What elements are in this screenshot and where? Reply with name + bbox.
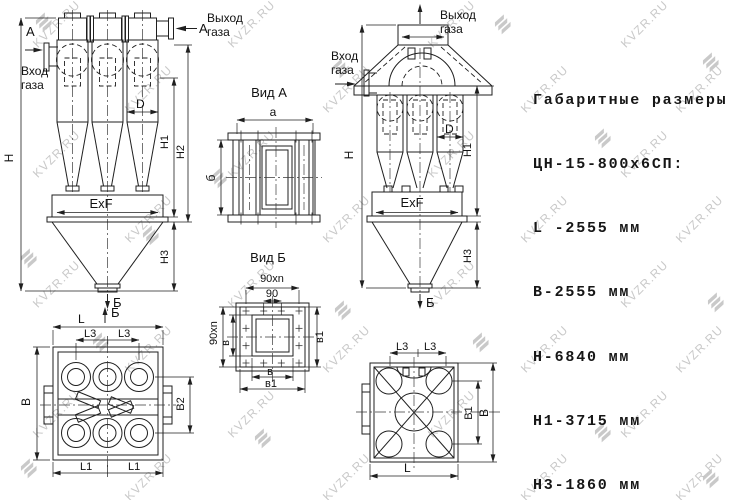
svg-text:в: в — [267, 366, 273, 378]
front-inlet-label-1: Вход — [21, 64, 48, 78]
front-dim-h2: H2 — [168, 45, 192, 222]
spec-item: H1-3715 мм — [533, 411, 727, 432]
svg-text:H3: H3 — [159, 250, 171, 264]
svg-text:в: в — [220, 340, 232, 346]
specs-title: Габаритные размеры — [533, 90, 727, 111]
svg-text:Б: Б — [426, 295, 435, 310]
side-outlet-arrow — [418, 4, 423, 24]
plan-right-dim-l: L — [370, 461, 458, 480]
svg-text:а: а — [270, 105, 277, 119]
svg-text:L3: L3 — [118, 328, 130, 340]
svg-text:L3: L3 — [84, 328, 96, 340]
drawing-sheet: KVZR.RUKVZR.RUKVZR.RUKVZR.RUKVZR.RUKVZR.… — [0, 0, 750, 500]
front-view: А Выход газа А Вход газа — [2, 10, 243, 312]
front-box-label: ExF — [89, 196, 112, 211]
spec-item: L -2555 мм — [533, 218, 727, 239]
svg-text:в1: в1 — [314, 331, 326, 343]
svg-text:90: 90 — [266, 288, 278, 300]
side-dim-h1: H1 — [462, 86, 494, 216]
front-outlet-arrow — [176, 26, 198, 31]
svg-text:L3: L3 — [396, 341, 408, 353]
svg-text:б: б — [204, 174, 218, 181]
view-b-title: Вид Б — [250, 250, 286, 265]
side-view: Выход газа Вход газа — [331, 4, 494, 310]
specs-model: ЦН-15-800х6СП: — [533, 154, 727, 175]
spec-item: H-6840 мм — [533, 347, 727, 368]
svg-text:D: D — [136, 97, 145, 111]
svg-text:L: L — [404, 461, 411, 475]
svg-text:B: B — [477, 409, 491, 417]
svg-text:Б: Б — [111, 305, 120, 320]
side-box-label: ExF — [400, 195, 423, 210]
svg-text:H1: H1 — [159, 135, 171, 149]
side-inlet-label-1: Вход — [331, 49, 358, 63]
svg-text:L1: L1 — [80, 461, 92, 473]
svg-text:H: H — [2, 154, 16, 163]
specs-panel: Габаритные размеры ЦН-15-800х6СП: L -255… — [533, 47, 727, 500]
front-dim-h3: H3 — [159, 222, 174, 291]
svg-text:H3: H3 — [462, 249, 474, 263]
side-dim-d: D — [437, 122, 463, 137]
plan-view-left: Б L L3 L3 — [19, 305, 194, 477]
svg-text:H1: H1 — [462, 143, 474, 157]
svg-text:B2: B2 — [175, 397, 187, 410]
side-outlet-label-1: Выход — [440, 8, 476, 22]
plan-left-dim-l1: L1 L1 — [53, 461, 163, 477]
side-outlet-label-2: газа — [440, 22, 463, 36]
svg-text:H: H — [342, 151, 356, 160]
front-dim-d: D — [127, 97, 158, 112]
svg-text:в1: в1 — [265, 378, 277, 390]
side-inlet-label-2: газа — [331, 63, 354, 77]
plan-view-right: L3 L3 — [356, 341, 500, 480]
front-outlet-label-1: Выход — [207, 11, 243, 25]
side-view-b-arrow: Б — [418, 294, 435, 310]
front-inlet-label-2: газа — [21, 78, 44, 92]
plan-left-view-b-arrow: Б — [103, 305, 120, 323]
front-view-label-a-left: А — [26, 24, 35, 39]
svg-text:90xn: 90xn — [208, 321, 220, 345]
svg-text:B: B — [19, 398, 33, 406]
plan-left-inlet-ducts — [75, 392, 133, 422]
view-a: Вид А а — [204, 85, 322, 228]
svg-text:L: L — [78, 312, 85, 326]
view-a-dim-a: а — [237, 105, 313, 134]
svg-text:B1: B1 — [463, 406, 475, 419]
svg-text:D: D — [445, 122, 454, 136]
spec-item: Н3-1860 мм — [533, 475, 727, 496]
plan-left-dim-b: B — [19, 347, 50, 460]
svg-text:L3: L3 — [424, 341, 436, 353]
plan-right-dim-l3: L3 L3 — [390, 341, 446, 366]
svg-text:H2: H2 — [175, 145, 187, 159]
view-b: Вид Б 90xn 90 — [208, 250, 326, 393]
view-a-title: Вид А — [251, 85, 287, 100]
spec-item: B-2555 мм — [533, 282, 727, 303]
view-a-dim-b: б — [204, 140, 229, 215]
front-outlet-label-2: газа — [207, 25, 230, 39]
front-dim-h: H — [2, 18, 178, 291]
side-inlet-arrow — [335, 82, 356, 87]
svg-text:L1: L1 — [128, 461, 140, 473]
front-inlet-arrow — [25, 48, 43, 53]
svg-text:90xn: 90xn — [260, 273, 284, 285]
